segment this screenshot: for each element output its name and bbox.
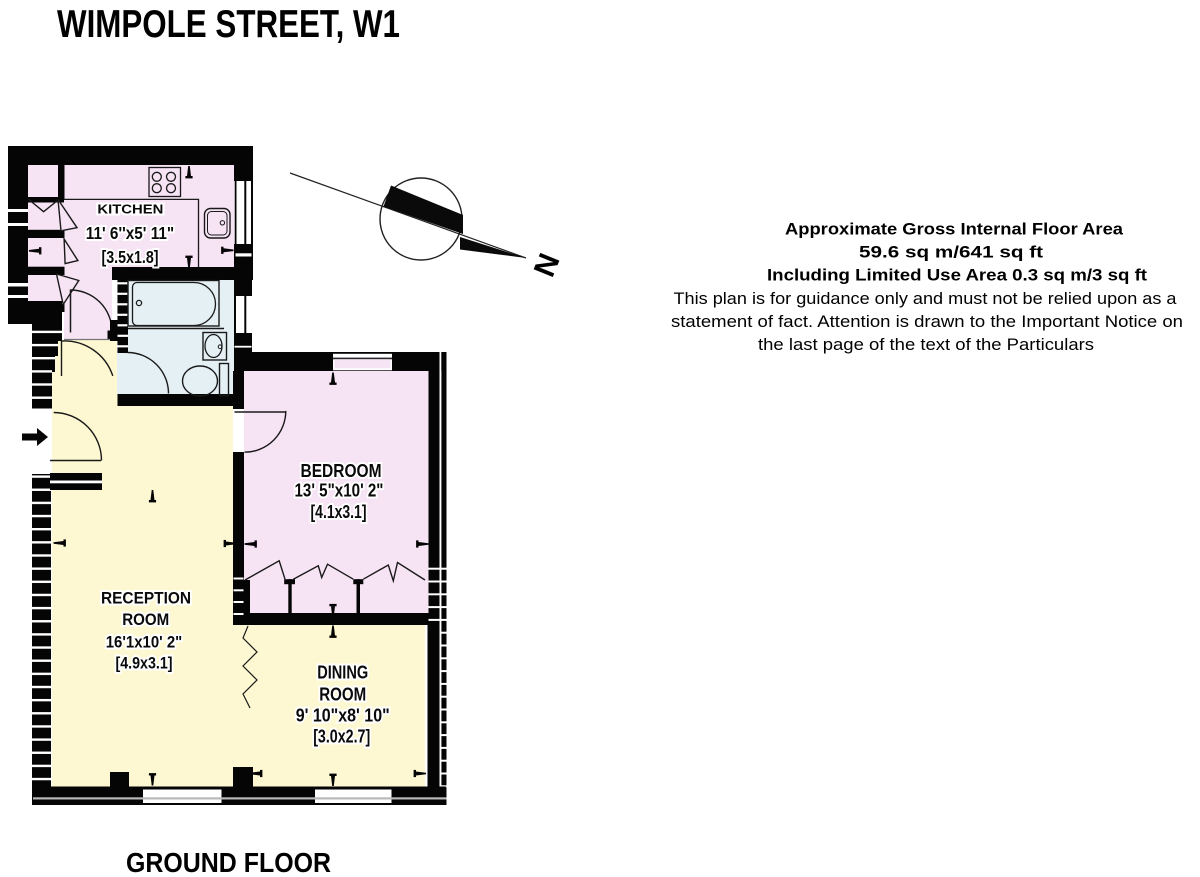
svg-text:[4.1x3.1]: [4.1x3.1] — [311, 502, 367, 522]
svg-text:RECEPTION: RECEPTION — [101, 589, 191, 608]
svg-text:N: N — [526, 248, 565, 280]
svg-text:This plan is for guidance only: This plan is for guidance only and must … — [674, 289, 1178, 308]
svg-text:ROOM: ROOM — [319, 685, 366, 705]
svg-text:[3.0x2.7]: [3.0x2.7] — [313, 727, 370, 747]
svg-text:[3.5x1.8]: [3.5x1.8] — [102, 247, 159, 267]
svg-text:59.6 sq m/641 sq ft: 59.6 sq m/641 sq ft — [859, 243, 1043, 262]
svg-text:DINING: DINING — [317, 663, 368, 683]
svg-text:11' 6''x5' 11": 11' 6''x5' 11" — [86, 223, 174, 243]
svg-text:[4.9x3.1]: [4.9x3.1] — [116, 654, 173, 673]
svg-text:Approximate Gross Internal Flo: Approximate Gross Internal Floor Area — [785, 220, 1124, 239]
svg-text:ROOM: ROOM — [122, 610, 169, 629]
svg-text:WIMPOLE STREET, W1: WIMPOLE STREET, W1 — [57, 3, 400, 46]
svg-text:GROUND FLOOR: GROUND FLOOR — [126, 847, 331, 877]
svg-text:16'1x10' 2": 16'1x10' 2" — [106, 633, 183, 652]
svg-text:BEDROOM: BEDROOM — [301, 461, 382, 481]
svg-text:9' 10"x8' 10": 9' 10"x8' 10" — [296, 706, 390, 726]
svg-text:statement of fact. Attention i: statement of fact. Attention is drawn to… — [671, 312, 1183, 331]
svg-text:Including Limited Use Area 0.3: Including Limited Use Area 0.3 sq m/3 sq… — [767, 266, 1147, 285]
svg-text:the last page of the text of t: the last page of the text of the Particu… — [758, 335, 1094, 354]
svg-text:13' 5"x10' 2": 13' 5"x10' 2" — [295, 481, 384, 501]
svg-text:KITCHEN: KITCHEN — [97, 201, 163, 216]
